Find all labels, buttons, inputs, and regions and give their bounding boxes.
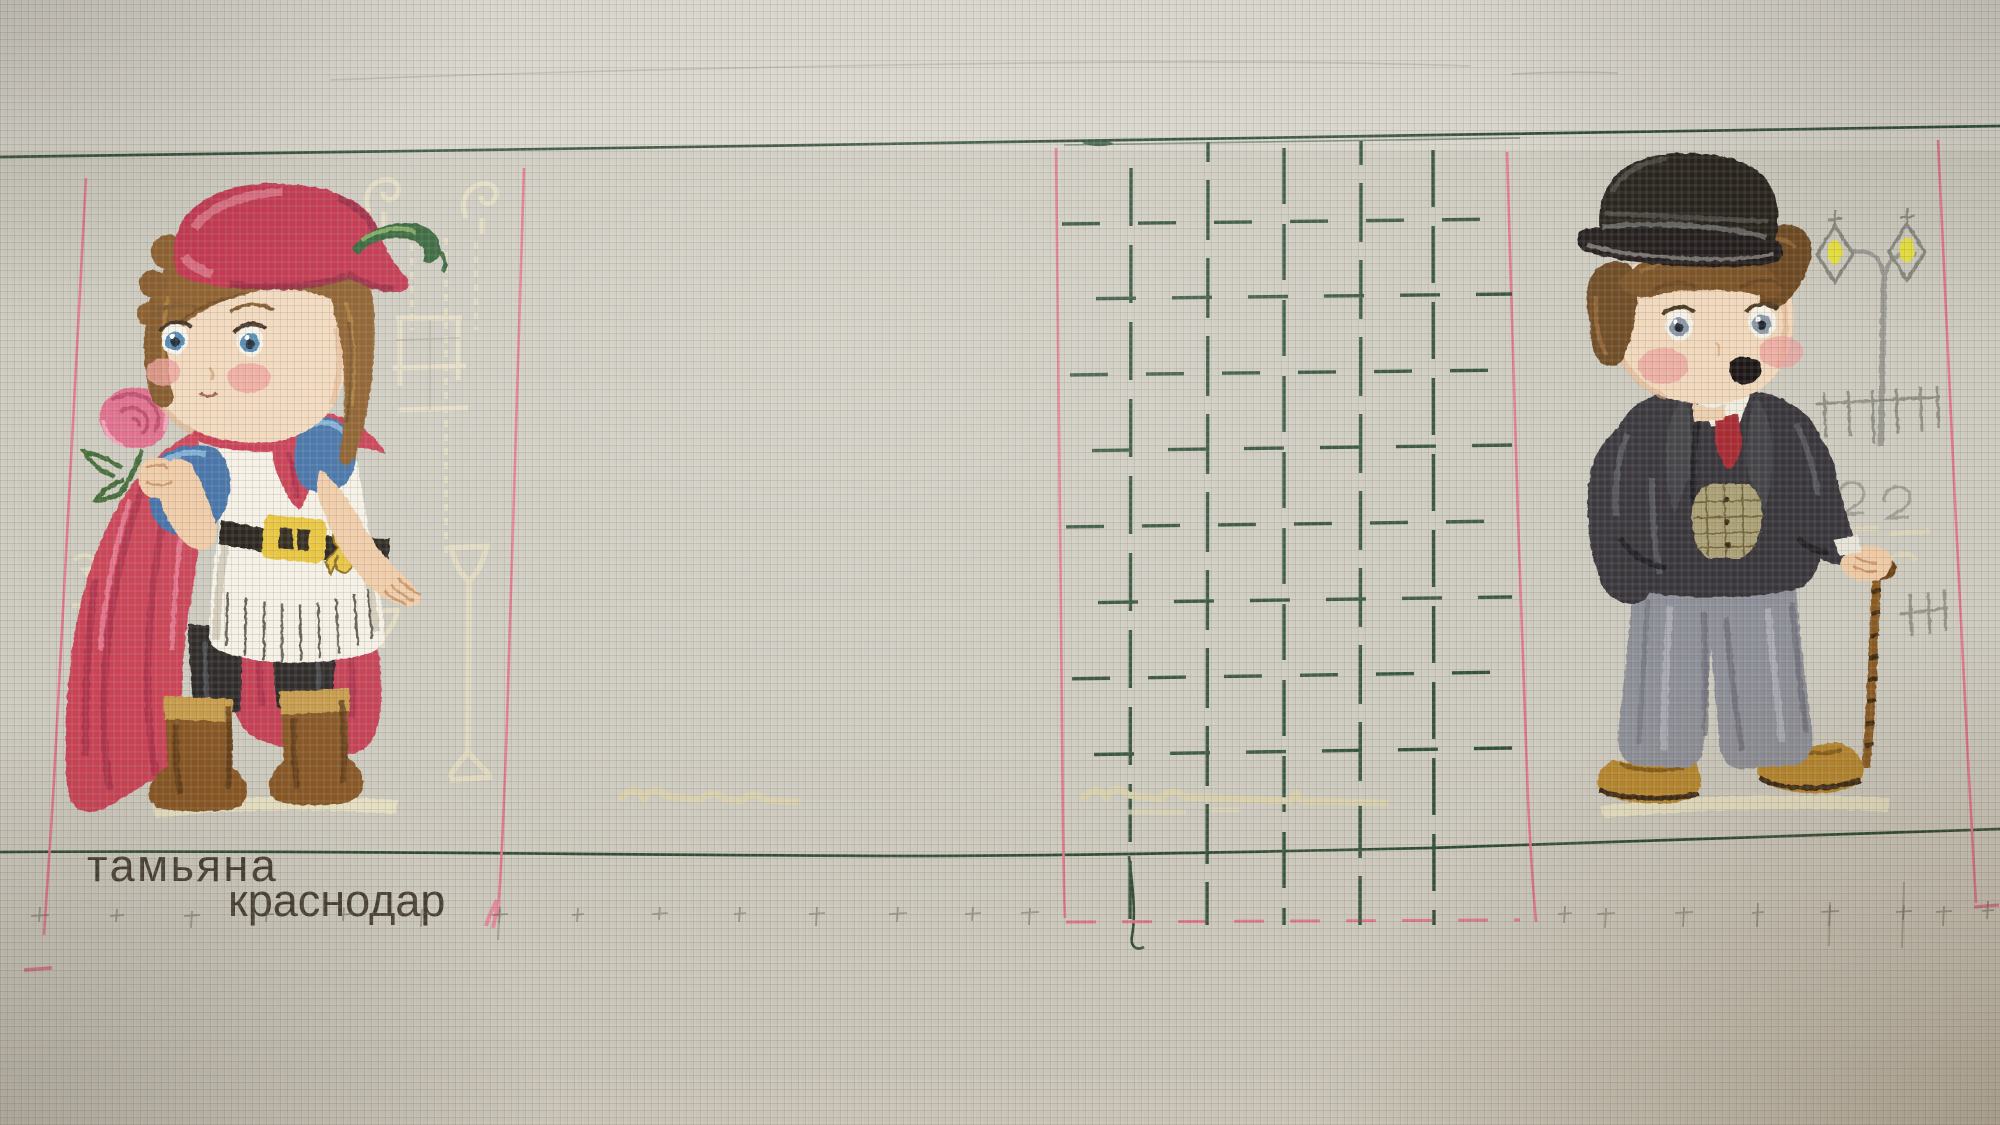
svg-text:краснодар: краснодар bbox=[228, 875, 445, 926]
